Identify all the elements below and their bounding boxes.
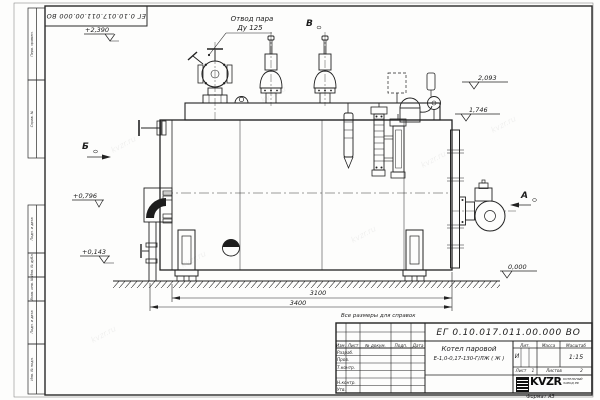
top-rotated-stamp: ЕГ 0.10.017.011.00.000 ВО — [45, 6, 147, 26]
steam-outlet-label-line2: Ду 125 — [222, 24, 278, 32]
view-label-a: А — [521, 191, 528, 201]
manhole — [223, 239, 240, 256]
elevation-zero: 0,000 — [508, 263, 527, 271]
masshtab-header: Масштаб — [560, 343, 592, 348]
sheet-cell: Лист 1 — [513, 368, 537, 373]
side-stamp-label: Взам. инв. № — [30, 277, 34, 300]
drawing-sheet: kvzr.ru kvzr.ru kvzr.ru kvzr.ru kvzr.ru … — [0, 0, 600, 400]
side-stamp-label: Подп. и дата — [30, 217, 34, 240]
row-tkontr: Т.контр. — [337, 365, 355, 370]
steam-drum — [185, 103, 440, 120]
left-stamp-boxes — [28, 8, 45, 394]
product-name: Котел паровой — [425, 345, 513, 353]
drum-end-valve — [400, 97, 441, 123]
elevation-mid: +0,796 — [73, 192, 97, 200]
col-podp: Подп. — [391, 343, 411, 348]
reference-note: Все размеры для справок — [341, 313, 416, 319]
massa-header: Масса — [537, 343, 560, 348]
steam-outlet-leader — [208, 33, 272, 56]
steam-outlet-label-line1: Отвод пара — [222, 15, 282, 23]
scale-value: 1:15 — [560, 353, 592, 361]
lit-header: Лит. — [513, 343, 537, 348]
dim-total: 3400 — [278, 299, 318, 307]
view-b-arrow — [87, 155, 111, 160]
col-izm: Изм. — [336, 343, 346, 348]
elevation-low: +0,143 — [82, 248, 106, 256]
view-label-b: Б — [82, 142, 89, 152]
kvzr-logo-icon — [516, 377, 529, 392]
side-stamp-label: Подп. и дата — [30, 310, 34, 333]
side-stamp-label: Справ. № — [30, 111, 34, 128]
water-gauge — [371, 103, 406, 178]
col-data: Дата — [411, 343, 425, 348]
boiler-side-view — [139, 32, 516, 281]
doc-number: ЕГ 0.10.017.011.00.000 ВО — [425, 325, 592, 341]
row-nkontr: Н.контр. — [337, 380, 356, 385]
level-sensor — [344, 103, 353, 168]
boiler-shell — [160, 120, 452, 270]
kvzr-logo-subtext-line2: ЗАВОД РФ — [563, 382, 583, 386]
rear-flange-strip — [447, 130, 464, 268]
row-prov: Пров. — [337, 357, 349, 362]
elevation-marks — [72, 34, 537, 278]
dim-base: 3100 — [298, 289, 338, 297]
dim-height-1: 2,093 — [478, 74, 497, 82]
sheets-number: 2 — [580, 368, 583, 373]
kvzr-logo-subtext: КОТЕЛЬНЫЙ ЗАВОД РФ — [563, 378, 583, 385]
view-a-arrow — [510, 203, 531, 208]
sheets-label: Листов — [546, 368, 562, 373]
gauge-cock — [427, 73, 435, 97]
row-utv: Утв. — [337, 387, 346, 392]
ground-line — [113, 281, 500, 288]
dimension-lines — [72, 26, 537, 311]
sheets-cell: Листов 2 — [537, 368, 592, 373]
support-skid-right — [403, 230, 426, 281]
lifting-lug — [235, 97, 248, 104]
side-stamp-label: Инв. № дубл. — [30, 253, 34, 276]
row-razrab: Разраб. — [337, 350, 353, 355]
col-ndoc: № докум. — [360, 343, 391, 348]
col-list: Лист — [346, 343, 360, 348]
elevation-top: +2,390 — [85, 26, 109, 34]
feed-elbow-assembly — [141, 188, 172, 281]
product-designation: Е-1,0-0,17-130-Г/ЛЖ ( Ж ) — [425, 356, 513, 362]
sheet-label: Лист — [516, 368, 527, 373]
safety-valve-2 — [314, 32, 336, 106]
format-note: Формат А3 — [513, 394, 568, 400]
sheet-number: 1 — [532, 368, 535, 373]
side-stamp-label: Инв. № подл. — [30, 357, 34, 380]
hidden-opening — [388, 73, 406, 93]
burner — [452, 180, 516, 231]
lit-value: И — [513, 353, 521, 360]
front-top-valve — [139, 120, 166, 136]
view-label-v: В — [306, 19, 313, 29]
kvzr-logo-text: KVZR — [530, 375, 561, 388]
side-stamp-label: Перв. примен. — [30, 31, 34, 56]
dim-height-2: 1,746 — [469, 106, 488, 114]
